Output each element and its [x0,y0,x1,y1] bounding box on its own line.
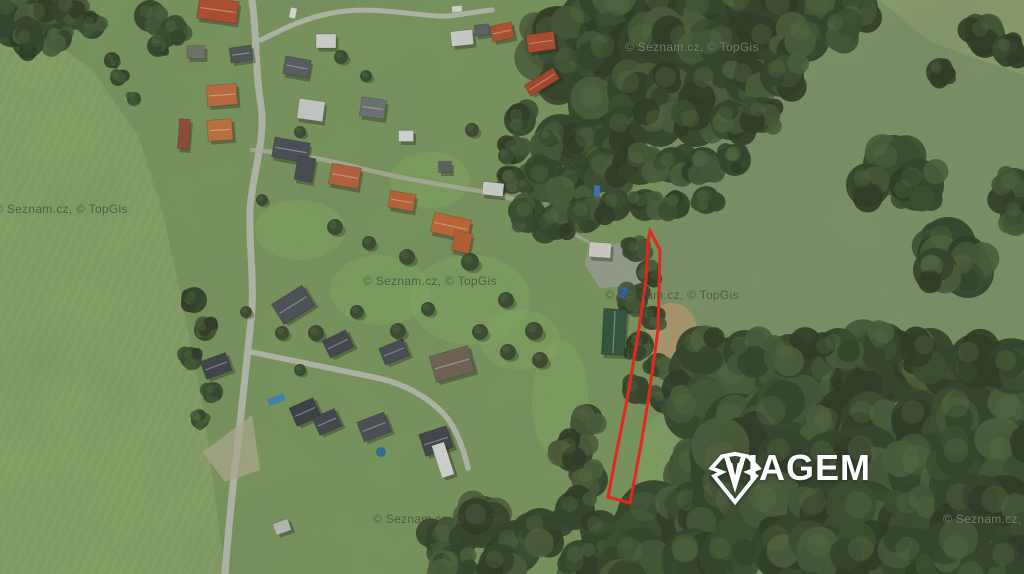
map-attribution-watermark: © Seznam.cz, © TopGis [0,202,128,216]
map-attribution-watermark: © Seznam.cz, © TopGis [363,274,497,288]
map-attribution-watermark: © Seznam.cz, © TopGis [373,512,507,526]
map-attribution-watermark: © Seznam.cz, © TopGis [605,288,739,302]
viagem-logo: VIAGEM [702,446,892,486]
satellite-map-view: © Seznam.cz, © TopGis© Seznam.cz, © TopG… [0,0,1024,574]
viagem-gem-icon [702,446,768,506]
map-attribution-watermark: © Seznam.cz, © TopGis [943,512,1024,526]
map-attribution-watermark: © Seznam.cz, © TopGis [625,40,759,54]
